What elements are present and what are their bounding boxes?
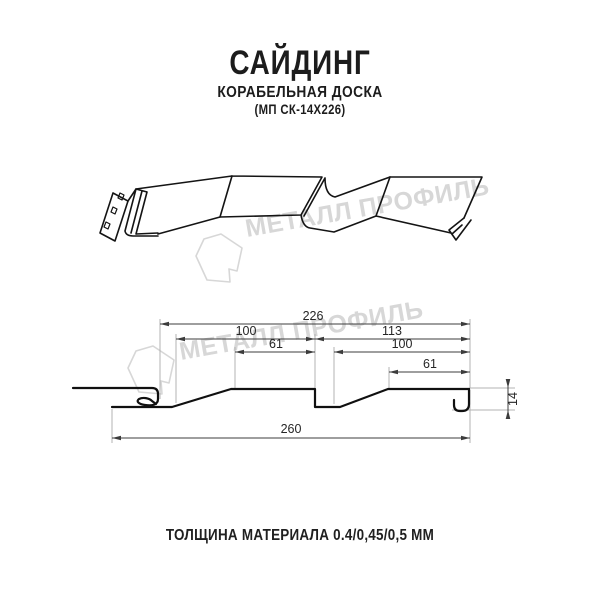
profile-right-hook: [454, 389, 469, 411]
thickness-note: ТОЛЩИНА МАТЕРИАЛА 0.4/0,45/0,5 ММ: [48, 527, 552, 545]
slope-face: [136, 176, 232, 234]
watermark-logo-top: МЕТАЛЛ ПРОФИЛЬ: [196, 172, 491, 282]
profile-outline: [112, 389, 469, 407]
dim-label-right-section: 113: [382, 324, 402, 338]
profile-lock-seam: [138, 398, 158, 405]
dim-label-cover-width: 226: [303, 309, 324, 323]
dim-label-left-top: 61: [269, 337, 283, 351]
lock-fold: [125, 189, 158, 236]
nail-strip: [100, 193, 128, 241]
dim-label-height: 14: [506, 392, 520, 406]
j-edge-fold: [449, 218, 471, 240]
dim-label-total-width: 260: [281, 422, 302, 436]
technical-drawing: МЕТАЛЛ ПРОФИЛЬ МЕТАЛЛ ПРОФИЛЬ 226 100 1: [0, 0, 600, 600]
dim-label-left-panel: 100: [236, 324, 257, 338]
dim-label-right-panel: 100: [392, 337, 413, 351]
dim-label-right-top: 61: [423, 357, 437, 371]
